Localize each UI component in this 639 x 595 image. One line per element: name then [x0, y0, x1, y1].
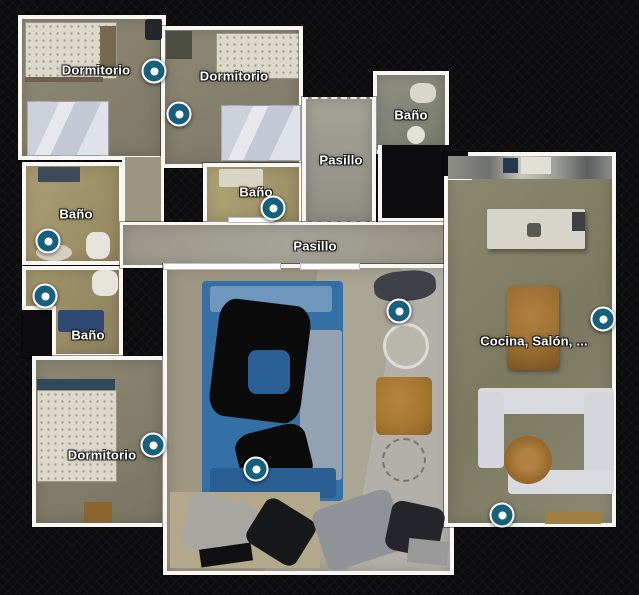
- toilet: [86, 232, 110, 259]
- chair-outline: [382, 438, 426, 482]
- scan-void: [378, 145, 450, 222]
- waypoint-marker-9[interactable]: [244, 457, 269, 482]
- dining-table: [507, 286, 559, 370]
- nightstand: [84, 502, 112, 522]
- round-chair: [383, 323, 429, 369]
- sink: [410, 83, 436, 103]
- floorplan: DormitorioDormitorioBañoPasilloBañoBañoP…: [0, 0, 639, 595]
- bed: [221, 105, 301, 161]
- corridor-connector[interactable]: [122, 157, 164, 225]
- waypoint-marker-7[interactable]: [591, 307, 616, 332]
- door-threshold: [163, 263, 281, 270]
- room-pasillo-upper[interactable]: [302, 97, 376, 223]
- white-sofa-left: [478, 392, 504, 468]
- room-pasillo-main[interactable]: [120, 222, 455, 268]
- bed: [27, 101, 109, 156]
- waypoint-marker-10[interactable]: [490, 503, 515, 528]
- toilet: [407, 126, 425, 144]
- coffee-table-round: [504, 436, 552, 484]
- scan-void: [22, 306, 56, 358]
- waypoint-marker-1[interactable]: [142, 59, 167, 84]
- chair: [145, 19, 162, 40]
- sink-counter: [219, 169, 263, 187]
- desk: [166, 31, 192, 59]
- waypoint-marker-2[interactable]: [167, 102, 192, 127]
- toilet: [92, 270, 118, 296]
- bed: [37, 390, 117, 482]
- waypoint-marker-3[interactable]: [261, 196, 286, 221]
- island-end: [572, 212, 585, 231]
- bed-frame: [100, 26, 116, 76]
- vanity: [38, 167, 80, 182]
- waypoint-marker-6[interactable]: [387, 299, 412, 324]
- counter-item: [521, 157, 551, 174]
- shower-towels: [58, 310, 104, 332]
- debris: [407, 538, 449, 566]
- blue-cushion: [248, 350, 290, 394]
- headboard: [37, 379, 115, 390]
- stove: [503, 158, 518, 173]
- wood-strip: [545, 512, 601, 524]
- wood-table: [376, 377, 432, 435]
- waypoint-marker-8[interactable]: [141, 433, 166, 458]
- waypoint-marker-5[interactable]: [33, 284, 58, 309]
- bed: [216, 33, 299, 79]
- wall-stub: [25, 77, 103, 82]
- door-threshold: [300, 263, 360, 270]
- waypoint-marker-4[interactable]: [36, 229, 61, 254]
- island-sink: [527, 223, 541, 237]
